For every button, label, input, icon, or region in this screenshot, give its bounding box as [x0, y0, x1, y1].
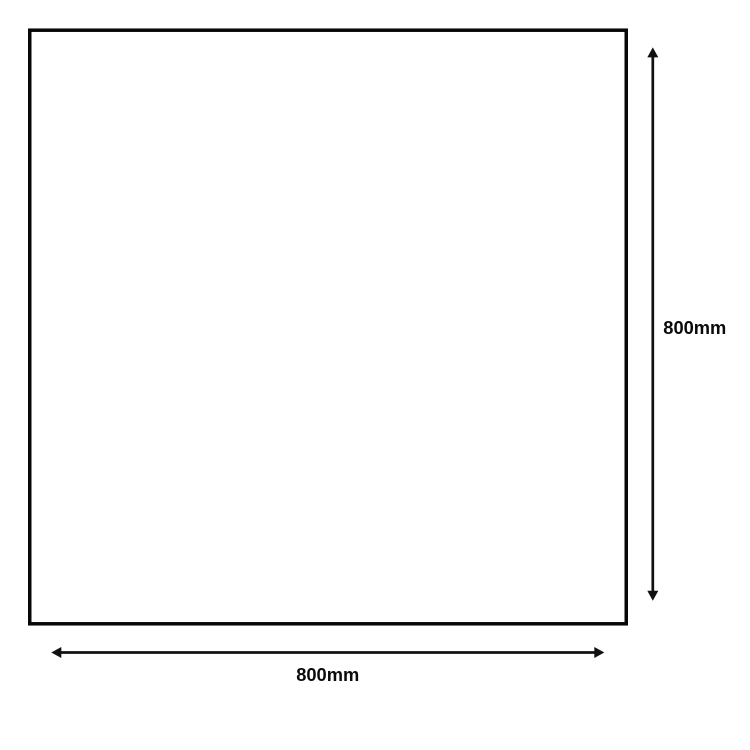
- svg-text:800mm: 800mm: [296, 664, 359, 685]
- svg-text:800mm: 800mm: [663, 317, 726, 338]
